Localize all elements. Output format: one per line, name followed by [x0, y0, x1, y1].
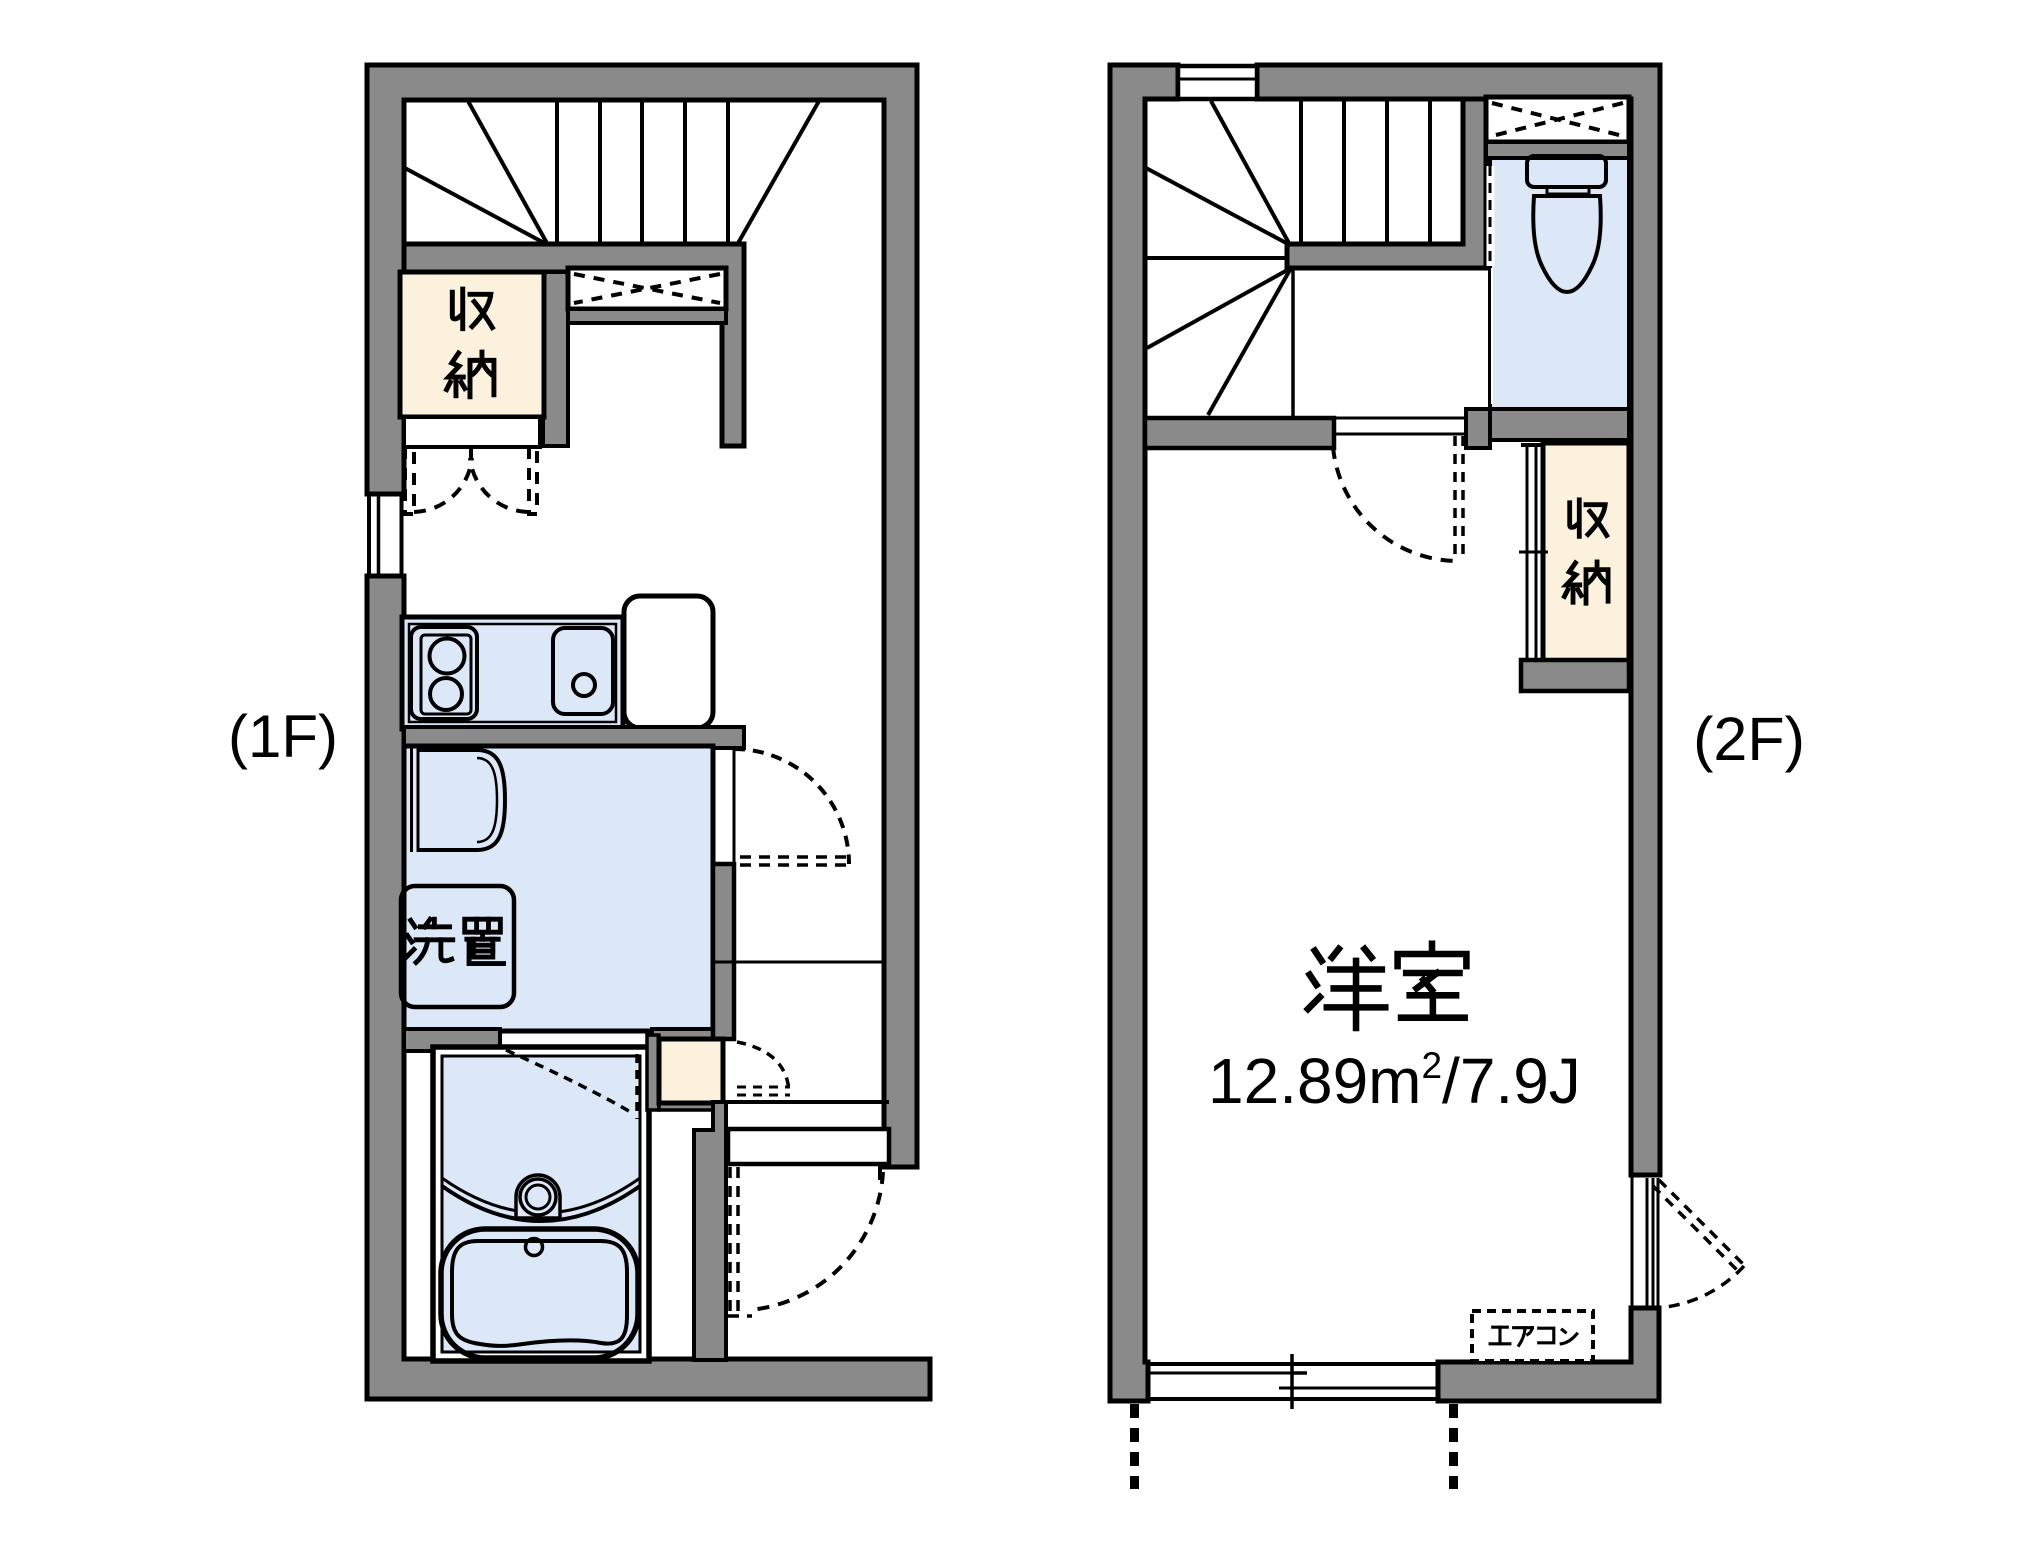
svg-text:(2F): (2F) [1693, 705, 1805, 773]
svg-text:(1F): (1F) [228, 703, 338, 770]
svg-text:12.89m2/7.9J: 12.89m2/7.9J [1208, 1045, 1581, 1117]
